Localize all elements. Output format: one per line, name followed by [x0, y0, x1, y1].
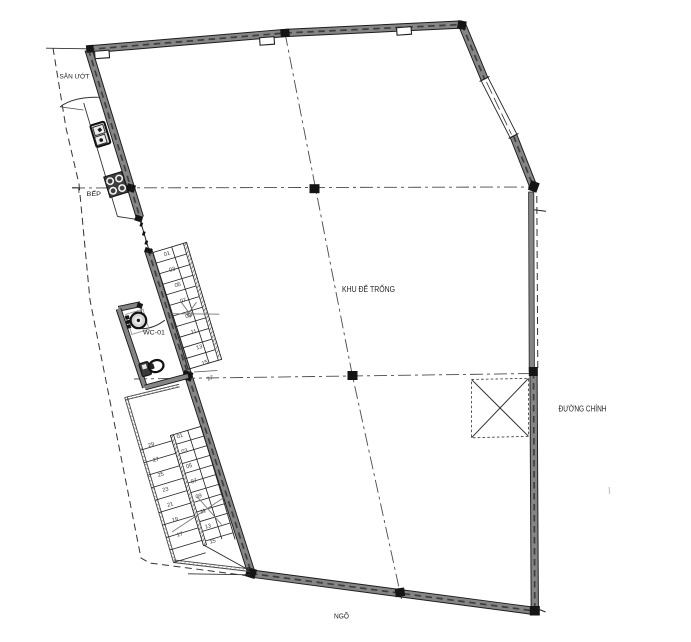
svg-text:WC-01: WC-01 [143, 329, 165, 336]
svg-text:NGÕ: NGÕ [334, 612, 349, 621]
svg-text:KHU ĐỂ TRỐNG: KHU ĐỂ TRỐNG [342, 284, 395, 294]
svg-text:ĐƯỜNG CHÍNH: ĐƯỜNG CHÍNH [559, 404, 607, 413]
svg-text:SÂN ƯỚT: SÂN ƯỚT [60, 72, 90, 81]
